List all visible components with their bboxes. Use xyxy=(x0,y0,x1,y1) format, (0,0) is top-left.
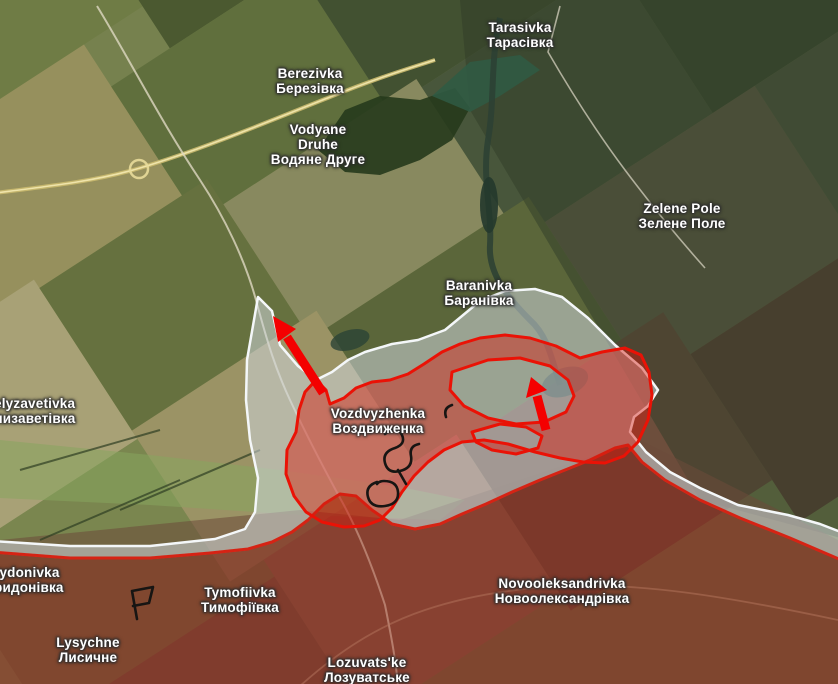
pond-tarasivka xyxy=(480,177,498,233)
satellite-terrain xyxy=(0,0,838,684)
frontline-map[interactable]: TarasivkaТарасівкаBerezivkaБерезівкаVody… xyxy=(0,0,838,684)
